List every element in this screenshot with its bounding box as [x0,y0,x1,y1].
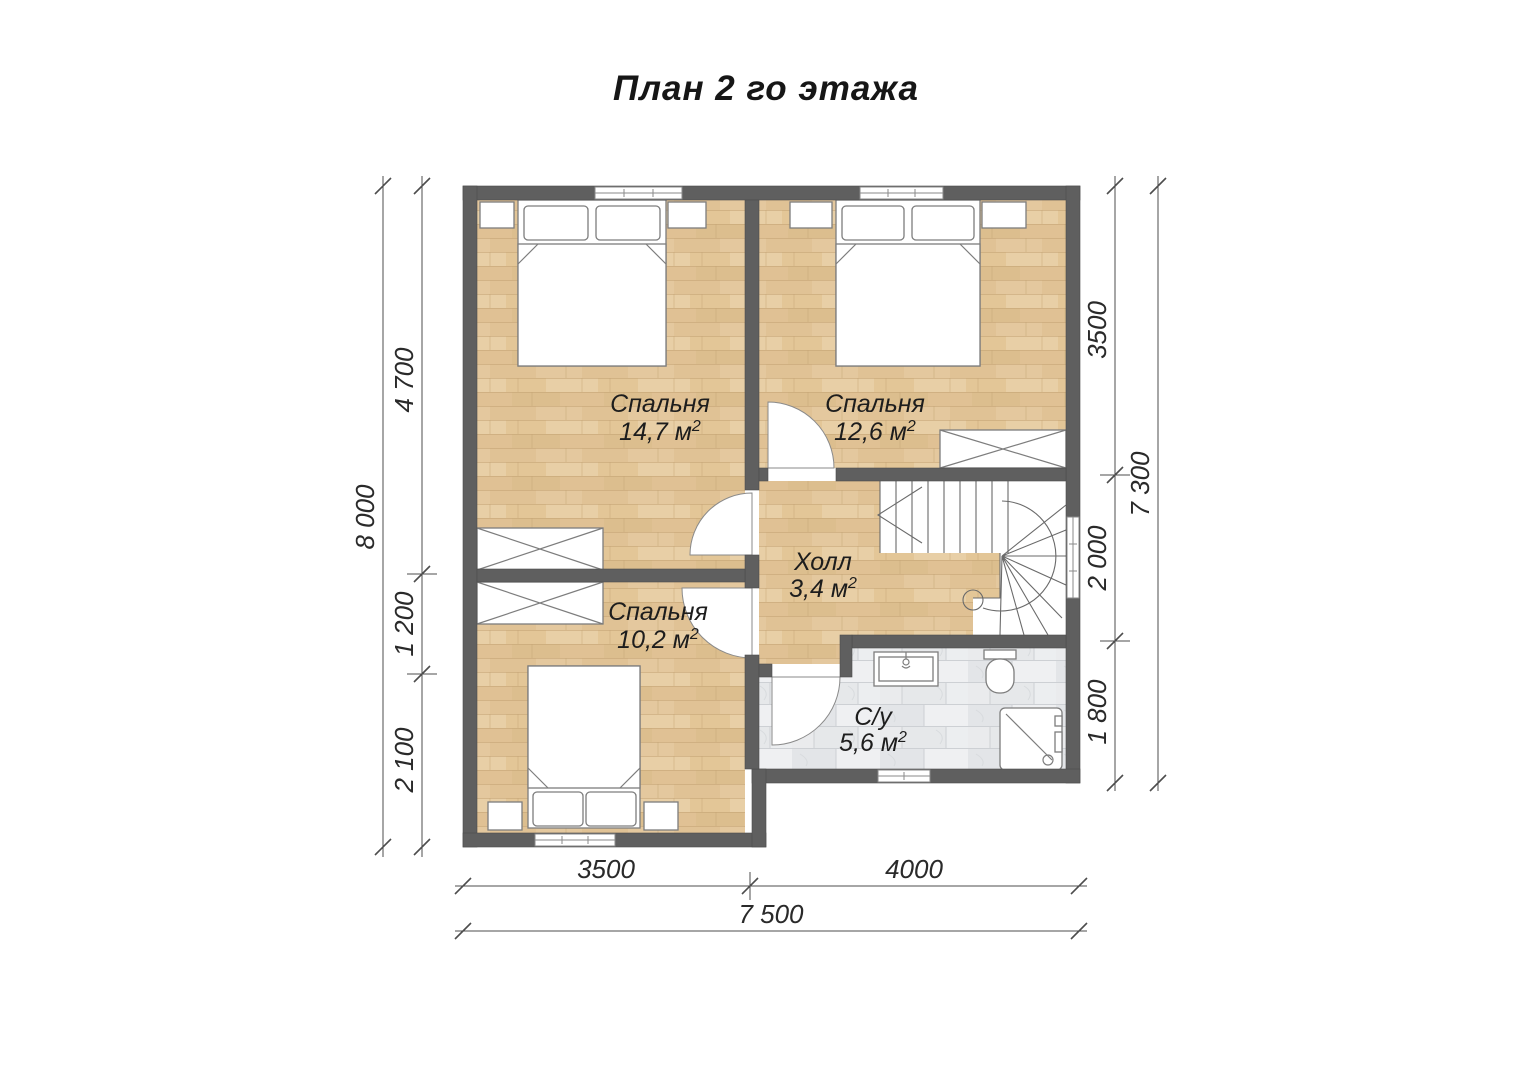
floor-plan-page: План 2 го этажа [0,0,1532,1080]
pillow-icon [586,792,636,826]
dim-bottom-segment-1: 3500 [577,854,635,884]
wall-interior-central-upper [745,200,759,490]
nightstand-icon [480,202,514,228]
wall-exterior-right [1066,186,1080,783]
window-icon [595,187,682,199]
dim-right-segment-3: 1 800 [1082,679,1112,745]
sink-icon [874,652,938,686]
room-label-hall: Холл [793,548,852,576]
room-area-bedroom-3: 10,2 м2 [617,626,699,654]
dim-right-segment-1: 3500 [1082,301,1112,359]
room-label-bathroom: С/у [854,703,893,731]
nightstand-icon [790,202,832,228]
wall-interior-bathroom-stub [759,664,772,677]
wardrobe-icon [940,430,1066,468]
dim-left-total: 8 000 [350,484,380,550]
bed-icon [836,200,980,366]
dim-right-total: 7 300 [1125,451,1155,517]
bed-icon [518,200,666,366]
room-label-bedroom-1: Спальня [610,390,710,418]
wall-exterior-left [463,186,477,847]
wall-interior-hall-top-stub [759,468,768,481]
wardrobe-icon [477,582,603,624]
wall-interior-central-lower [745,655,759,769]
wall-interior-central-mid [745,555,759,588]
window-icon [878,770,930,782]
wall-interior-hall-top [836,468,1066,481]
pillow-icon [524,206,588,240]
nightstand-icon [982,202,1026,228]
pillow-icon [842,206,904,240]
room-label-bedroom-2: Спальня [825,390,925,418]
window-icon [860,187,943,199]
room-area-bedroom-1: 14,7 м2 [619,418,701,446]
dim-left-segment-1: 4 700 [389,347,419,413]
dim-bottom-segment-2: 4000 [885,854,943,884]
room-area-hall: 3,4 м2 [789,575,857,603]
pillow-icon [533,792,583,826]
shower-icon [1000,708,1062,770]
dim-left-segment-2: 1 200 [389,591,419,657]
room-label-bedroom-3: Спальня [608,598,708,626]
wall-interior-bedrooms [477,569,745,582]
dim-left-segment-3: 2 100 [389,727,419,794]
wardrobe-icon [477,528,603,570]
pillow-icon [596,206,660,240]
window-icon [535,834,615,846]
dim-right-segment-2: 2 000 [1082,525,1112,592]
wall-exterior-top [463,186,1080,200]
floor-plan-drawing: План 2 го этажа [0,0,1532,1080]
nightstand-icon [668,202,706,228]
window-icon [1067,517,1079,598]
bed-icon [528,666,640,828]
wall-interior-bathroom-top [852,635,1066,648]
pillow-icon [912,206,974,240]
wall-interior-bathroom-jog [840,635,852,677]
room-area-bedroom-2: 12,6 м2 [834,418,916,446]
dim-bottom-total: 7 500 [738,899,804,929]
nightstand-icon [644,802,678,830]
wall-exterior-step [752,769,766,847]
toilet-icon [984,650,1016,693]
room-area-bathroom: 5,6 м2 [839,729,907,757]
page-title: План 2 го этажа [613,69,919,108]
nightstand-icon [488,802,522,830]
